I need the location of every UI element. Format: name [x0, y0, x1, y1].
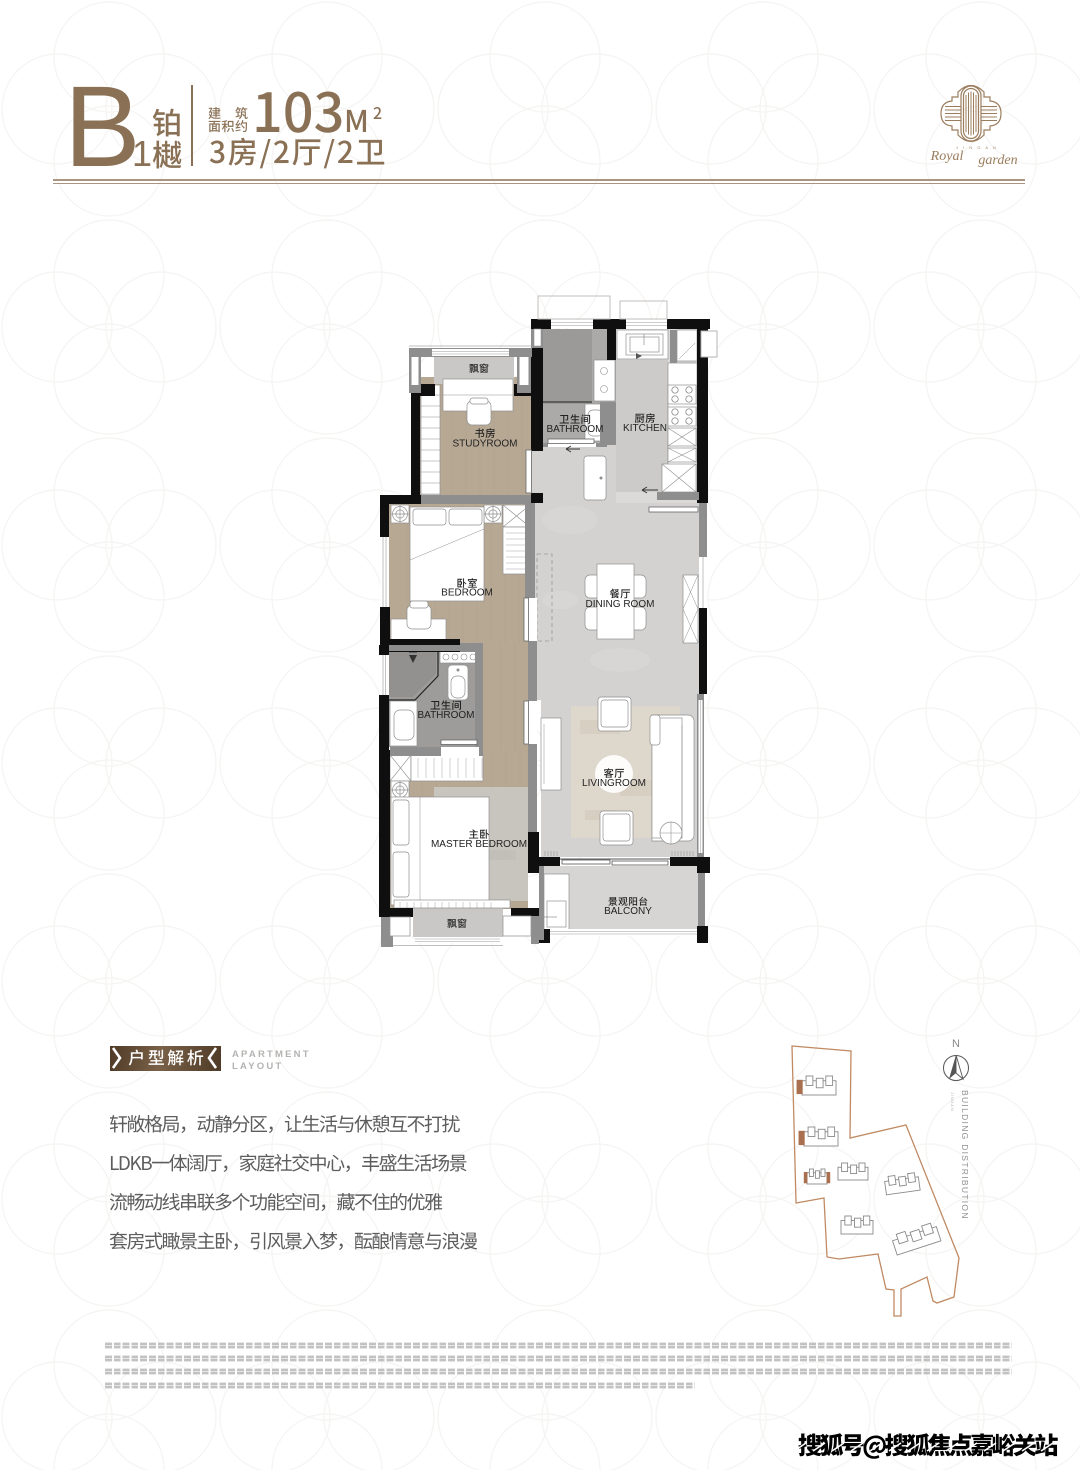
svg-text:BEDROOM: BEDROOM — [441, 588, 493, 599]
svg-text:B: B — [64, 63, 141, 180]
svg-text:N: N — [952, 1038, 960, 1050]
svg-text:KITCHEN: KITCHEN — [623, 423, 667, 434]
svg-text:Royal: Royal — [930, 149, 964, 164]
svg-text:STUDYROOM: STUDYROOM — [453, 439, 518, 450]
svg-text:BATHROOM: BATHROOM — [417, 710, 474, 721]
svg-text:DINING ROOM: DINING ROOM — [586, 599, 655, 610]
svg-text:JINGAN: JINGAN — [950, 1092, 955, 1111]
svg-text:LIVINGROOM: LIVINGROOM — [582, 778, 646, 789]
svg-text:MASTER BEDROOM: MASTER BEDROOM — [431, 839, 527, 850]
svg-text:BALCONY: BALCONY — [604, 906, 652, 917]
svg-text:BUILDING DISTRIBUTION: BUILDING DISTRIBUTION — [960, 1090, 970, 1220]
svg-text:BATHROOM: BATHROOM — [546, 424, 603, 435]
svg-text:garden: garden — [978, 153, 1017, 168]
